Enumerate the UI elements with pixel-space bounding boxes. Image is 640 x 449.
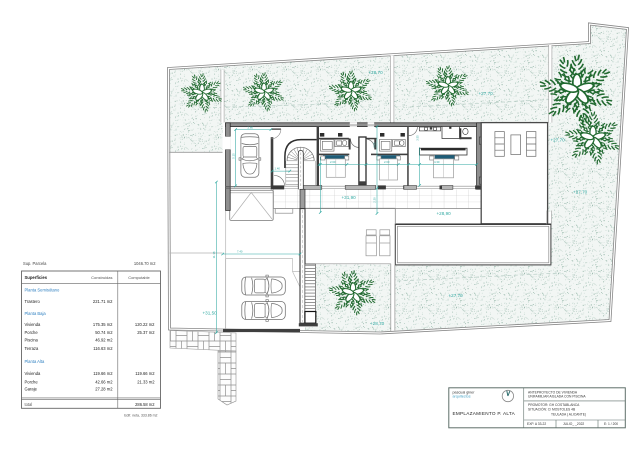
svg-text:3.05: 3.05	[373, 142, 377, 148]
svg-text:Computable: Computable	[128, 275, 150, 280]
svg-text:Vivienda: Vivienda	[25, 371, 42, 376]
svg-text:116.63 m2: 116.63 m2	[93, 346, 113, 351]
svg-text:2.60: 2.60	[330, 160, 336, 164]
svg-text:+27,70: +27,70	[573, 190, 588, 195]
svg-text:Porche: Porche	[25, 379, 39, 384]
svg-text:175.35 m2: 175.35 m2	[93, 322, 113, 327]
svg-text:46.92 m2: 46.92 m2	[95, 338, 113, 343]
svg-text:286.58 m2: 286.58 m2	[135, 402, 155, 407]
svg-text:+27,70: +27,70	[551, 138, 566, 143]
svg-text:+28,70: +28,70	[369, 70, 384, 75]
svg-text:11.18: 11.18	[212, 251, 216, 258]
svg-text:+31,50: +31,50	[203, 311, 218, 316]
svg-text:E: 1 / 200: E: 1 / 200	[604, 422, 618, 426]
svg-text:TEULADA ( ALICANTE): TEULADA ( ALICANTE)	[551, 412, 586, 416]
svg-text:+28,90: +28,90	[437, 211, 452, 216]
svg-text:UNIFAMILIAR AISLADA CON PISCIN: UNIFAMILIAR AISLADA CON PISCINA	[528, 395, 586, 399]
svg-text:2.60: 2.60	[248, 125, 254, 129]
svg-text:2.60: 2.60	[384, 160, 390, 164]
svg-text:Planta Alta: Planta Alta	[25, 359, 45, 364]
svg-text:4.30: 4.30	[434, 160, 440, 164]
svg-text:Garaje: Garaje	[25, 387, 38, 392]
svg-text:119.66 m2: 119.66 m2	[93, 371, 113, 376]
svg-text:Planta Baja: Planta Baja	[25, 311, 47, 316]
svg-text:total: total	[25, 402, 33, 407]
svg-text:Sup. Parcela: Sup. Parcela	[23, 261, 47, 266]
svg-text:2.30: 2.30	[373, 197, 377, 203]
svg-text:221.71 m2: 221.71 m2	[93, 299, 113, 304]
svg-text:PROMOTOR: GH COSTABLANCA: PROMOTOR: GH COSTABLANCA	[528, 403, 580, 407]
svg-text:Piscina: Piscina	[25, 338, 39, 343]
svg-text:Construidas: Construidas	[91, 275, 112, 280]
svg-text:JULIO_ _2022: JULIO_ _2022	[563, 422, 584, 426]
svg-text:Edif. neta, 333.86 m2: Edif. neta, 333.86 m2	[124, 414, 157, 418]
svg-text:Vivienda: Vivienda	[25, 322, 42, 327]
svg-text:7.40: 7.40	[237, 250, 243, 254]
svg-text:EXP. A 33-22: EXP. A 33-22	[527, 422, 546, 426]
svg-text:5.15: 5.15	[231, 153, 235, 159]
svg-text:EMPLAZAMIENTO P. ALTA: EMPLAZAMIENTO P. ALTA	[453, 411, 516, 416]
svg-text:1.40: 1.40	[275, 167, 281, 171]
svg-text:arquitectos: arquitectos	[453, 395, 471, 399]
svg-text:25.37 m2: 25.37 m2	[137, 330, 155, 335]
svg-text:1046.70 m2: 1046.70 m2	[134, 261, 156, 266]
svg-text:3.55: 3.55	[416, 135, 420, 141]
svg-text:Porche: Porche	[25, 330, 39, 335]
svg-text:120.22 m2: 120.22 m2	[135, 322, 155, 327]
svg-text:119.66 m2: 119.66 m2	[135, 371, 155, 376]
svg-text:Superficies: Superficies	[25, 275, 48, 280]
svg-text:Planta Semisótano: Planta Semisótano	[25, 288, 60, 293]
svg-text:+28,70: +28,70	[370, 321, 385, 326]
svg-text:Terraza: Terraza	[25, 346, 40, 351]
svg-text:SITUACIÓN: C/ MOSTOLES 4B: SITUACIÓN: C/ MOSTOLES 4B	[528, 407, 576, 412]
svg-text:21.33 m2: 21.33 m2	[137, 379, 155, 384]
svg-text:+27,70: +27,70	[479, 91, 494, 96]
svg-text:+31,90: +31,90	[342, 195, 357, 200]
svg-text:27.28 m2: 27.28 m2	[95, 387, 113, 392]
svg-text:50.74 m2: 50.74 m2	[95, 330, 113, 335]
svg-text:+27,70: +27,70	[449, 293, 464, 298]
svg-text:Trastero: Trastero	[25, 299, 41, 304]
svg-text:42.66 m2: 42.66 m2	[95, 379, 113, 384]
